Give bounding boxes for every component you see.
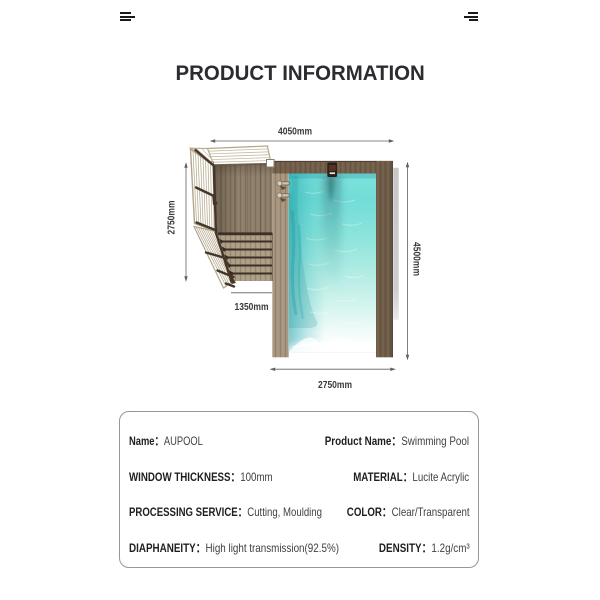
- svg-text:2750mm: 2750mm: [318, 379, 352, 391]
- svg-text:4050mm: 4050mm: [278, 126, 312, 138]
- svg-text:4500mm: 4500mm: [410, 242, 422, 276]
- svg-text:2750mm: 2750mm: [166, 200, 178, 234]
- svg-text:1350mm: 1350mm: [234, 301, 268, 313]
